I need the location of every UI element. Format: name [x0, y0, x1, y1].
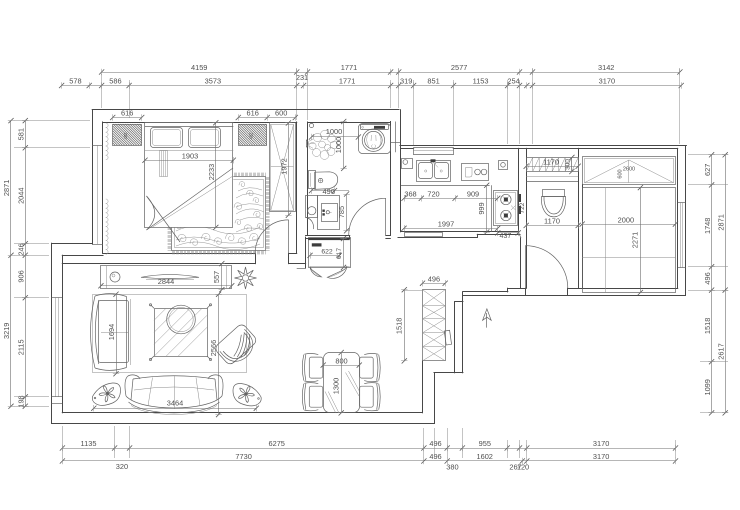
svg-text:7730: 7730 [235, 452, 251, 461]
svg-text:1903: 1903 [182, 151, 198, 160]
svg-text:586: 586 [109, 77, 121, 86]
svg-text:3170: 3170 [593, 439, 609, 448]
svg-text:2566: 2566 [209, 340, 218, 356]
svg-text:627: 627 [703, 164, 712, 176]
svg-text:2577: 2577 [451, 63, 467, 72]
svg-text:482: 482 [123, 132, 128, 140]
svg-text:600: 600 [275, 109, 287, 118]
svg-text:1694: 1694 [107, 324, 116, 340]
svg-text:578: 578 [69, 77, 81, 86]
svg-text:300: 300 [564, 159, 571, 170]
svg-text:1000: 1000 [326, 127, 342, 136]
svg-text:617: 617 [336, 248, 343, 260]
svg-text:1170: 1170 [543, 157, 559, 166]
svg-text:198: 198 [17, 395, 26, 407]
svg-text:6275: 6275 [268, 439, 284, 448]
svg-text:490: 490 [323, 187, 335, 196]
svg-text:722: 722 [519, 202, 526, 213]
svg-text:496: 496 [429, 452, 441, 461]
svg-text:246: 246 [17, 243, 26, 255]
svg-text:1300: 1300 [331, 378, 340, 394]
svg-text:2044: 2044 [17, 187, 26, 203]
svg-text:955: 955 [479, 439, 491, 448]
svg-text:1997: 1997 [438, 220, 454, 229]
svg-text:2271: 2271 [631, 232, 640, 248]
svg-text:557: 557 [212, 271, 221, 283]
svg-text:909: 909 [467, 190, 479, 199]
svg-text:616: 616 [121, 109, 133, 118]
svg-text:319: 319 [400, 77, 412, 86]
svg-text:496: 496 [429, 439, 441, 448]
svg-text:3142: 3142 [598, 63, 614, 72]
svg-text:2600: 2600 [623, 167, 635, 173]
svg-text:120: 120 [517, 463, 529, 472]
svg-text:720: 720 [427, 190, 439, 199]
svg-text:1099: 1099 [703, 379, 712, 395]
svg-text:1153: 1153 [473, 77, 489, 86]
svg-text:622: 622 [321, 248, 333, 255]
svg-text:2617: 2617 [716, 343, 725, 359]
svg-text:581: 581 [17, 128, 26, 140]
svg-text:3573: 3573 [205, 77, 221, 86]
svg-text:1135: 1135 [81, 439, 97, 448]
svg-text:3170: 3170 [593, 452, 609, 461]
svg-text:4159: 4159 [191, 63, 207, 72]
svg-text:3219: 3219 [2, 323, 11, 339]
svg-text:1771: 1771 [339, 77, 355, 86]
svg-text:616: 616 [247, 109, 259, 118]
svg-text:851: 851 [427, 77, 439, 86]
svg-text:254: 254 [507, 77, 519, 86]
svg-text:3170: 3170 [599, 77, 615, 86]
svg-text:1518: 1518 [703, 318, 712, 334]
svg-text:600: 600 [618, 169, 624, 178]
svg-text:482: 482 [249, 132, 254, 140]
svg-text:3464: 3464 [167, 399, 183, 408]
svg-text:2844: 2844 [158, 277, 174, 286]
svg-text:320: 320 [116, 462, 128, 471]
svg-text:1748: 1748 [703, 218, 712, 234]
svg-text:906: 906 [17, 270, 26, 282]
svg-text:1771: 1771 [341, 63, 357, 72]
svg-text:2000: 2000 [618, 215, 634, 224]
svg-text:437: 437 [500, 233, 512, 240]
svg-text:496: 496 [428, 274, 440, 283]
svg-text:2871: 2871 [2, 180, 11, 196]
svg-text:2871: 2871 [716, 214, 725, 230]
svg-text:1170: 1170 [544, 217, 560, 226]
svg-text:1602: 1602 [476, 452, 492, 461]
svg-text:380: 380 [446, 463, 458, 472]
svg-text:1000: 1000 [334, 137, 343, 153]
svg-text:1972: 1972 [280, 158, 289, 174]
svg-text:2233: 2233 [207, 164, 216, 180]
svg-text:785: 785 [337, 206, 346, 218]
svg-text:368: 368 [404, 190, 416, 199]
svg-text:231: 231 [296, 73, 308, 82]
svg-text:1518: 1518 [395, 318, 404, 334]
svg-text:999: 999 [477, 202, 486, 214]
svg-text:496: 496 [703, 272, 712, 284]
svg-text:2115: 2115 [17, 339, 26, 355]
